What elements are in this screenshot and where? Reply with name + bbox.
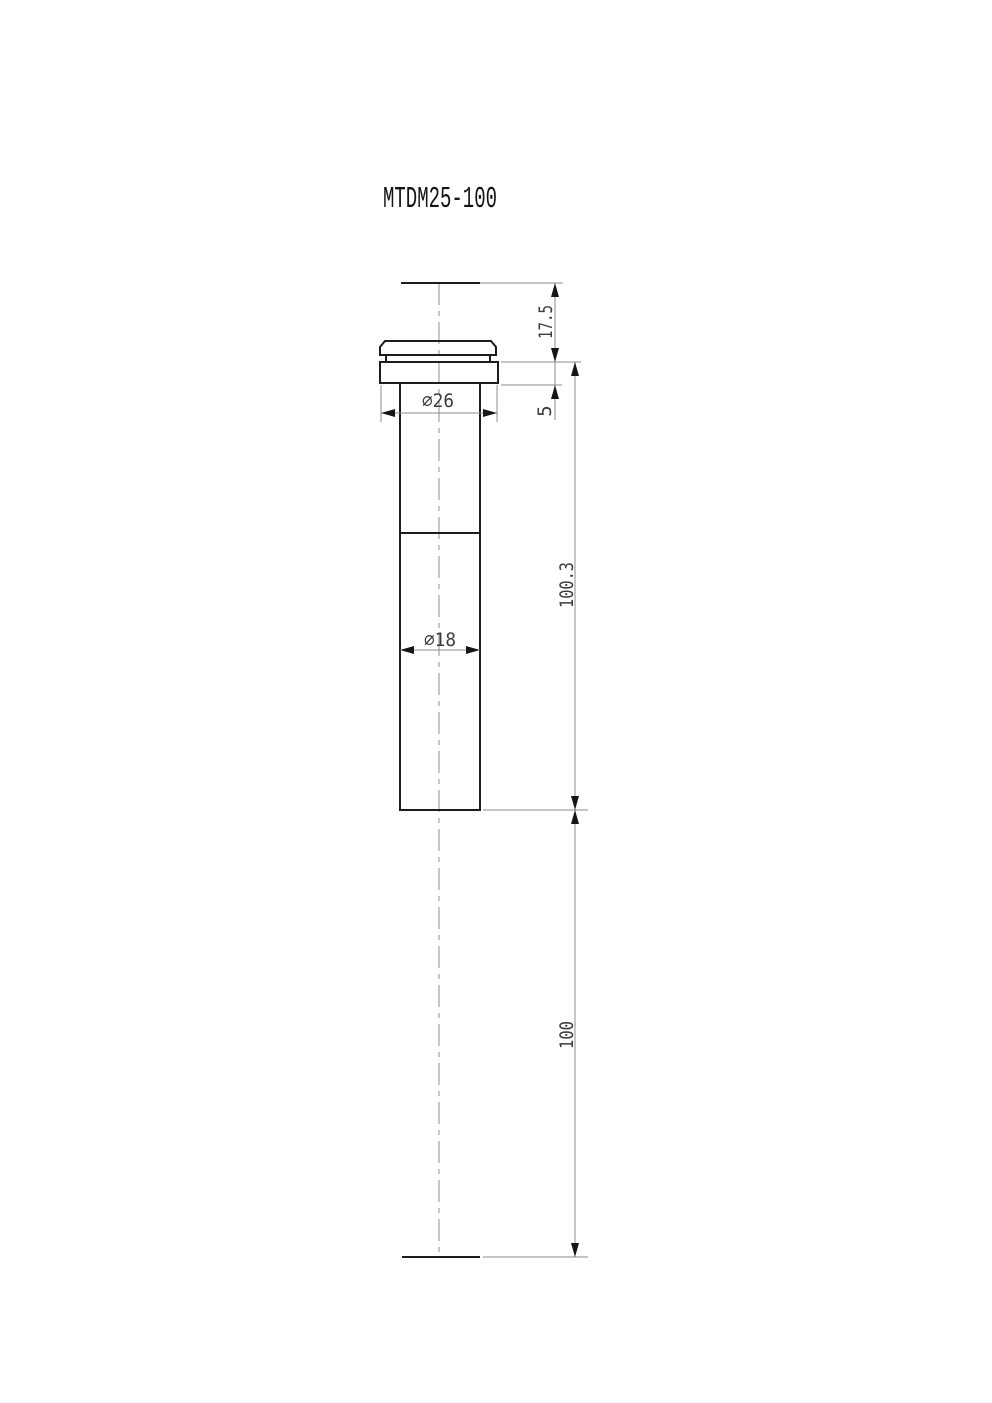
arrow-up-icon xyxy=(571,810,579,824)
dim-label-5: 5 xyxy=(534,405,556,416)
cap-top-plate xyxy=(380,341,496,355)
dim-label-dia-26: ⌀26 xyxy=(422,390,454,412)
arrow-right-icon xyxy=(483,409,497,417)
drawing-canvas: MTDM25-100 17.5 xyxy=(0,0,992,1403)
arrow-down-icon xyxy=(571,1243,579,1257)
dim-label-100-3: 100.3 xyxy=(556,562,578,608)
arrow-up-icon xyxy=(551,283,559,297)
arrow-down-icon xyxy=(571,796,579,810)
dim-label-100: 100 xyxy=(556,1021,578,1049)
arrow-right-icon xyxy=(466,646,480,654)
dimension-flange-thickness: 5 xyxy=(534,362,559,420)
dimension-top-extension: 17.5 xyxy=(535,283,559,362)
arrow-left-icon xyxy=(400,646,414,654)
technical-drawing: MTDM25-100 17.5 xyxy=(0,0,992,1403)
dimension-rod-diameter: ⌀18 xyxy=(400,629,480,654)
dimension-upper-section: 100.3 xyxy=(556,362,579,810)
arrow-left-icon xyxy=(381,409,395,417)
rod-body xyxy=(400,383,480,810)
drawing-title: MTDM25-100 xyxy=(383,182,497,217)
arrow-down-icon xyxy=(551,348,559,362)
dimension-travel: 100 xyxy=(556,810,579,1257)
extension-lines xyxy=(480,283,588,1257)
dim-label-17-5: 17.5 xyxy=(535,305,557,339)
arrow-up-icon xyxy=(571,362,579,376)
dim-label-dia-18: ⌀18 xyxy=(424,629,456,651)
arrow-up-icon xyxy=(551,385,559,399)
